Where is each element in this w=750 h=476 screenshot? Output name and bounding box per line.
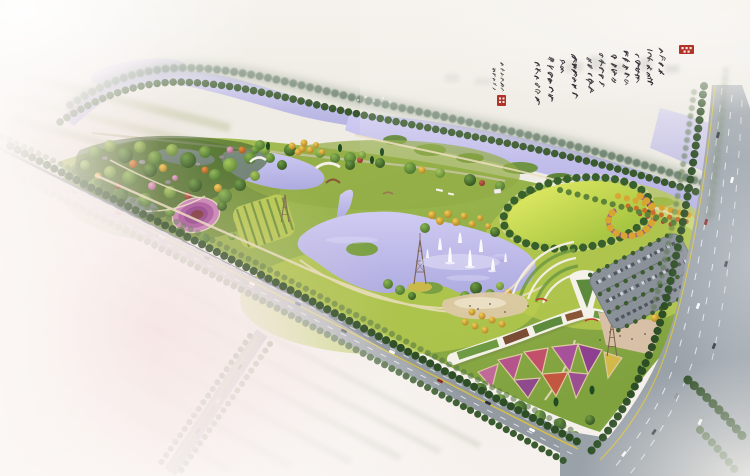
signature-seal — [497, 95, 506, 106]
park-rendering-stage — [0, 0, 750, 476]
title-seal — [679, 45, 694, 54]
white-pavilion — [494, 189, 501, 194]
